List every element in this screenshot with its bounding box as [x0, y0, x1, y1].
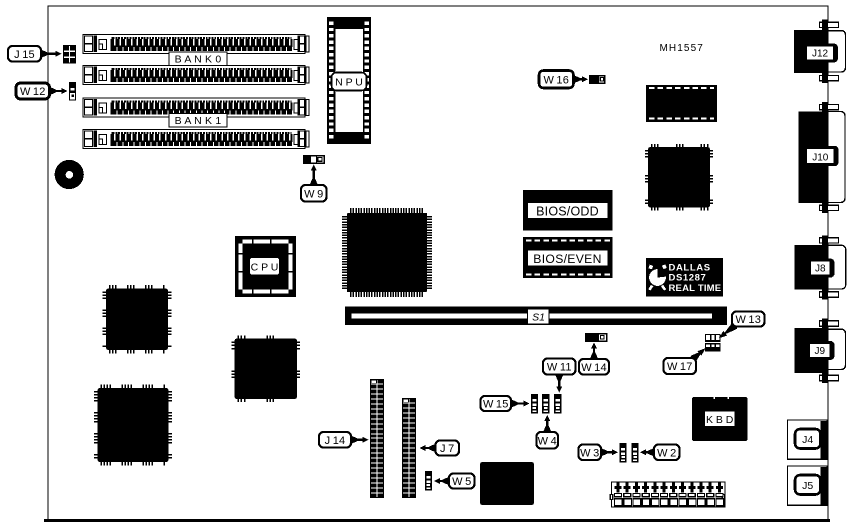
- svg-text:W 4: W 4: [538, 435, 557, 447]
- svg-text:W 9: W 9: [304, 188, 323, 200]
- svg-text:J8: J8: [815, 264, 826, 275]
- svg-text:J 7: J 7: [440, 443, 454, 455]
- svg-text:MH1557: MH1557: [660, 43, 704, 54]
- svg-text:W 11: W 11: [547, 362, 572, 374]
- svg-text:J10: J10: [812, 152, 829, 163]
- svg-text:REAL TIME: REAL TIME: [669, 283, 722, 294]
- svg-text:J 15: J 15: [14, 49, 35, 61]
- svg-text:W 14: W 14: [581, 362, 607, 374]
- svg-text:BIOS/ODD: BIOS/ODD: [536, 204, 599, 218]
- svg-text:BIOS/EVEN: BIOS/EVEN: [533, 252, 601, 266]
- svg-text:W 16: W 16: [543, 74, 569, 86]
- svg-text:W 5: W 5: [452, 476, 471, 488]
- svg-text:J4: J4: [802, 434, 813, 446]
- svg-text:B A N K 0: B A N K 0: [175, 54, 222, 66]
- svg-text:B A N K 1: B A N K 1: [175, 115, 222, 127]
- svg-text:J9: J9: [814, 346, 825, 357]
- svg-text:W 15: W 15: [483, 399, 509, 411]
- svg-text:W 2: W 2: [657, 447, 676, 459]
- svg-text:S1: S1: [532, 312, 545, 324]
- svg-text:J5: J5: [802, 480, 813, 492]
- svg-text:J12: J12: [812, 49, 829, 60]
- svg-text:K B D: K B D: [706, 414, 734, 426]
- svg-text:W 3: W 3: [580, 447, 599, 459]
- svg-text:N P U: N P U: [335, 77, 363, 89]
- svg-text:W 17: W 17: [667, 361, 693, 373]
- svg-text:W 12: W 12: [20, 86, 46, 98]
- svg-text:C P U: C P U: [251, 262, 279, 274]
- svg-text:W 13: W 13: [735, 314, 761, 326]
- svg-text:J 14: J 14: [325, 435, 346, 447]
- svg-text:DS1287: DS1287: [669, 273, 707, 284]
